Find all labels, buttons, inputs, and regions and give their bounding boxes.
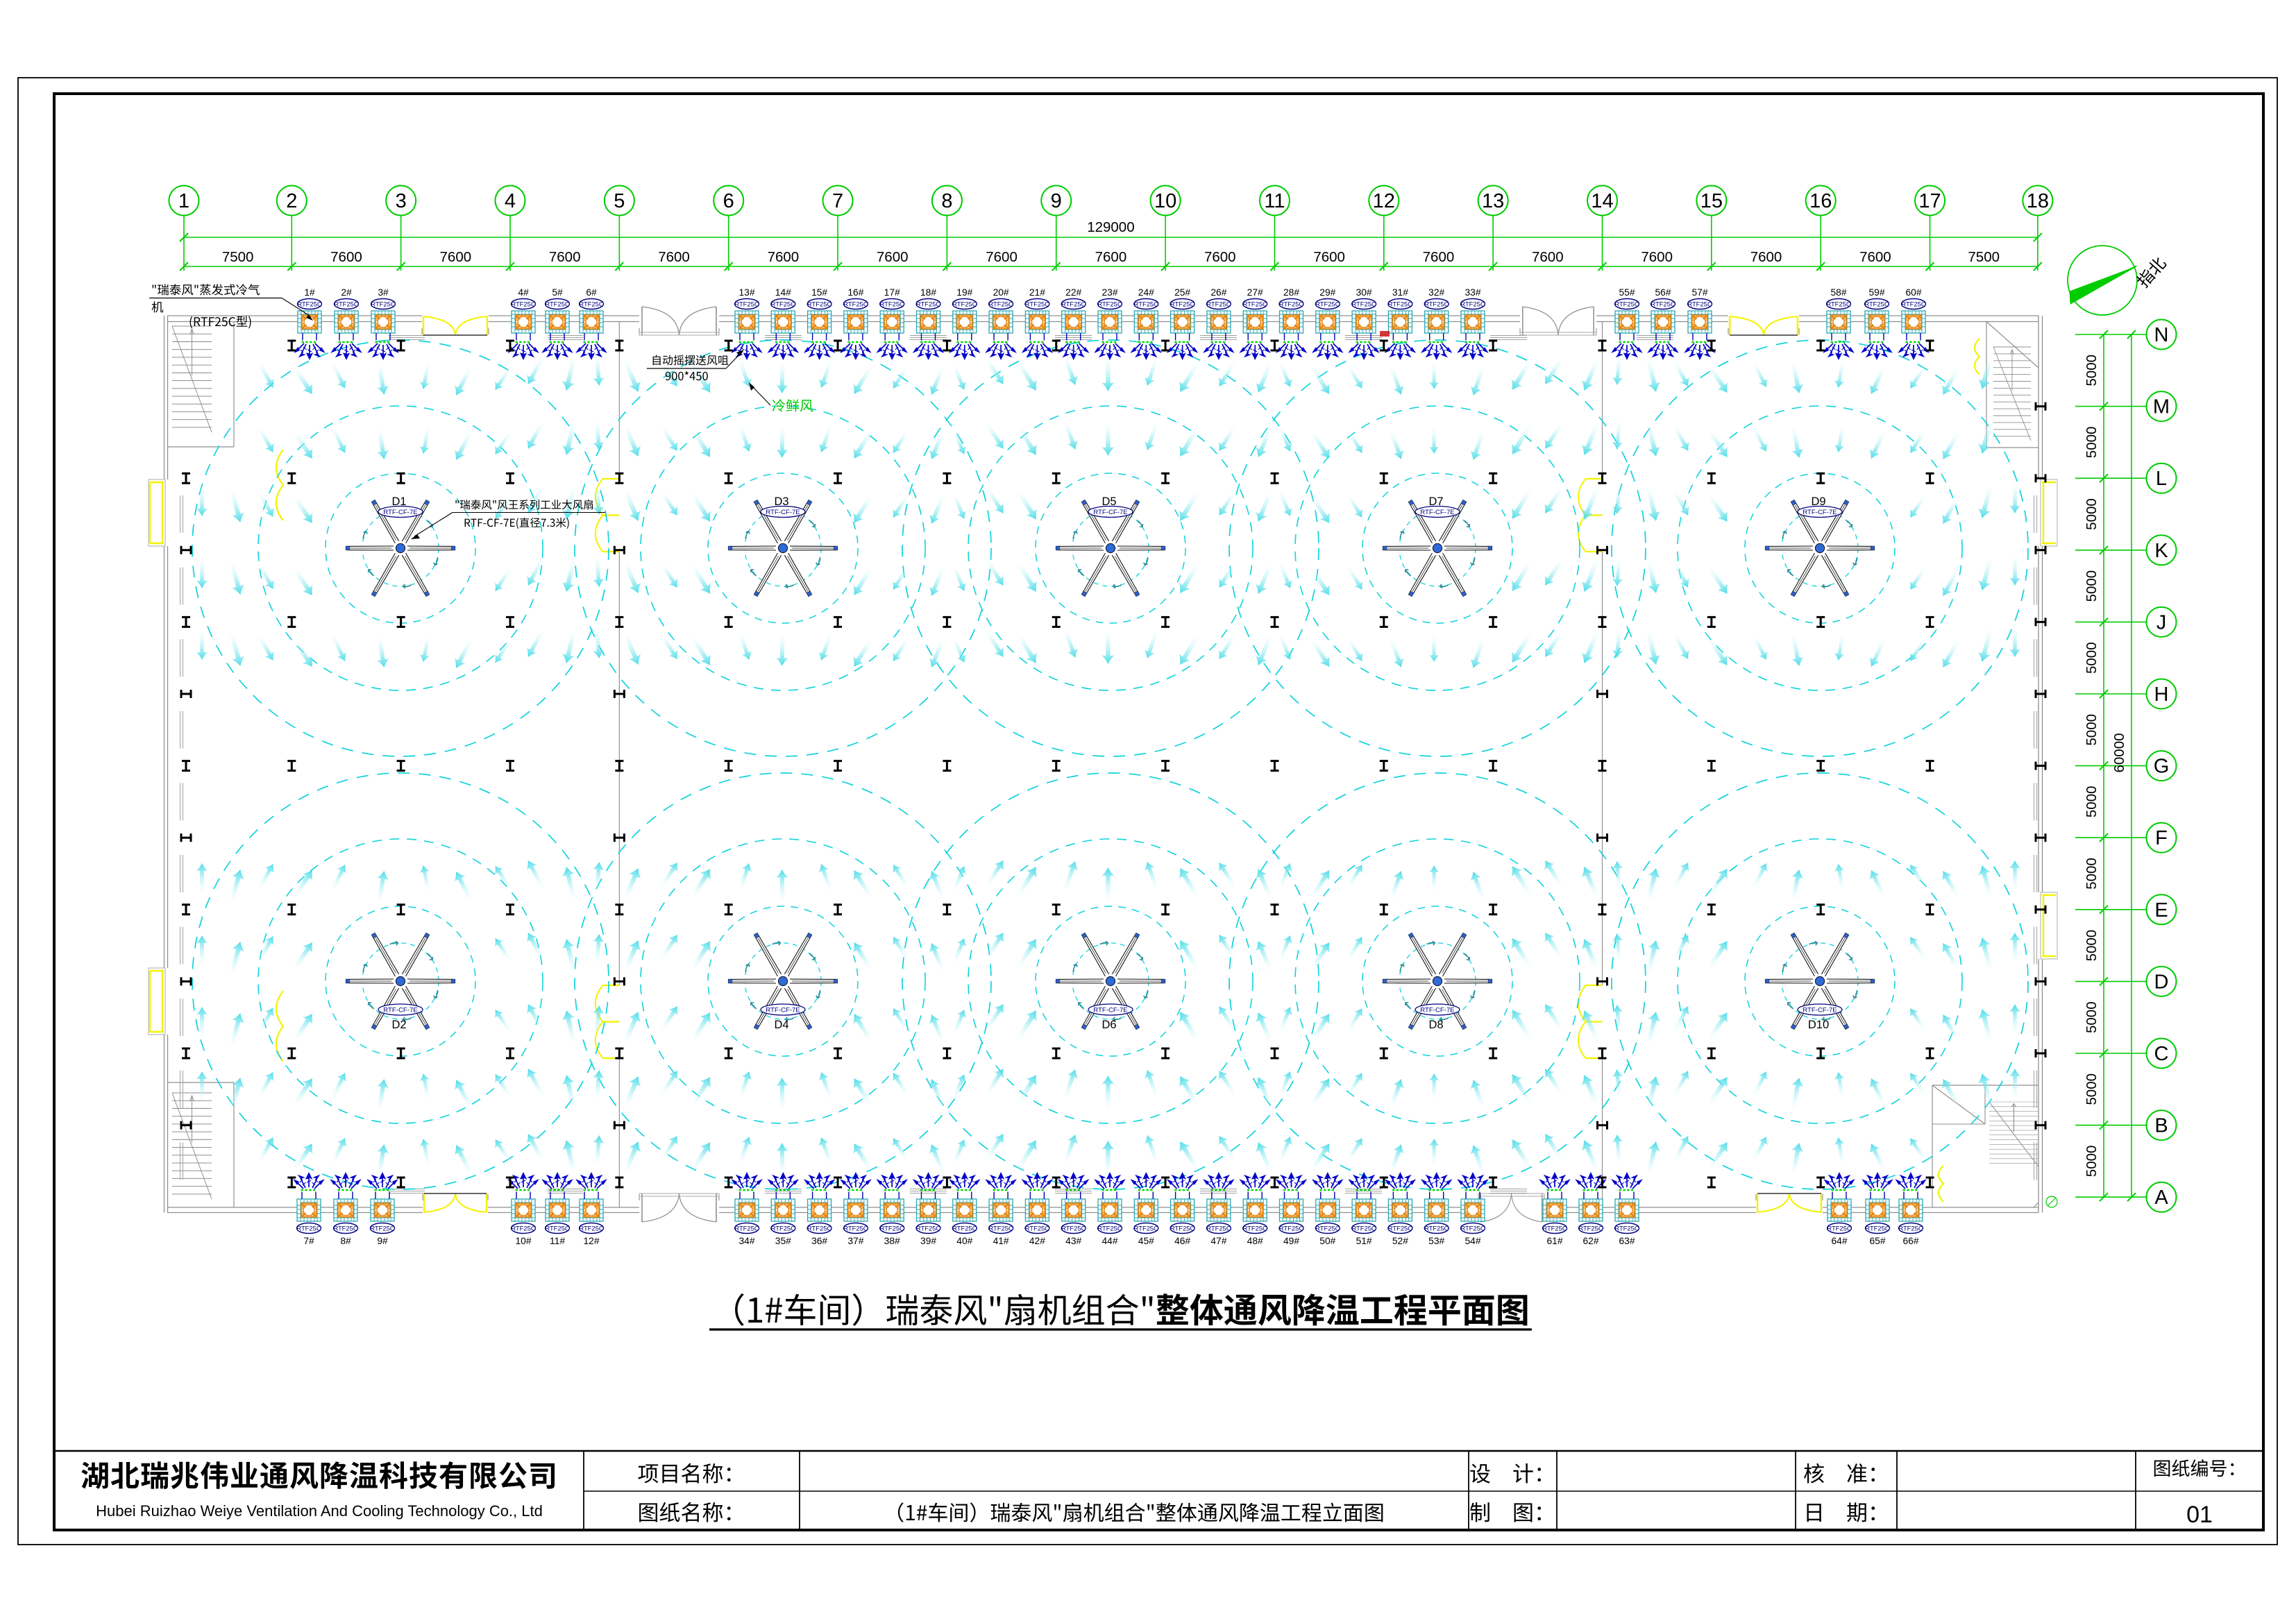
svg-text:5000: 5000 [2084, 427, 2100, 459]
svg-text:2#: 2# [341, 287, 352, 298]
svg-text:RTF25C: RTF25C [807, 1225, 832, 1232]
svg-text:RTF25C: RTF25C [1206, 1225, 1231, 1232]
svg-text:RTF-CF-7E: RTF-CF-7E [766, 1006, 800, 1014]
svg-text:6: 6 [723, 190, 734, 212]
svg-text:RTF25C: RTF25C [296, 1225, 321, 1232]
svg-text:35#: 35# [775, 1236, 791, 1246]
svg-text:RTF25C: RTF25C [297, 300, 321, 308]
svg-text:RTF25C: RTF25C [1578, 1225, 1603, 1232]
svg-text:60000: 60000 [2111, 733, 2127, 772]
svg-text:RTF25C: RTF25C [545, 300, 569, 308]
svg-text:41#: 41# [993, 1236, 1009, 1246]
svg-text:38#: 38# [884, 1236, 900, 1246]
svg-text:46#: 46# [1174, 1236, 1190, 1246]
svg-text:5000: 5000 [2084, 355, 2100, 386]
svg-text:5000: 5000 [2084, 1146, 2100, 1178]
svg-text:45#: 45# [1138, 1236, 1154, 1246]
svg-text:66#: 66# [1902, 1236, 1918, 1246]
svg-text:RTF25C: RTF25C [1279, 300, 1303, 308]
svg-text:6#: 6# [586, 287, 597, 298]
svg-text:D10: D10 [1808, 1019, 1829, 1031]
svg-text:5000: 5000 [2084, 714, 2100, 746]
svg-text:D6: D6 [1101, 1019, 1116, 1031]
svg-text:21#: 21# [1029, 287, 1045, 298]
svg-text:5000: 5000 [2084, 786, 2100, 818]
svg-text:RTF25C: RTF25C [1315, 300, 1340, 308]
svg-text:5000: 5000 [2084, 1001, 2100, 1033]
svg-text:5000: 5000 [2084, 858, 2100, 890]
svg-text:39#: 39# [920, 1236, 936, 1246]
svg-text:RTF25C: RTF25C [1134, 1225, 1158, 1232]
svg-text:13: 13 [1482, 190, 1504, 212]
svg-text:RTF-CF-7E: RTF-CF-7E [1093, 509, 1127, 516]
svg-text:61#: 61# [1546, 1236, 1562, 1246]
svg-text:22#: 22# [1065, 287, 1081, 298]
svg-text:9#: 9# [377, 1236, 388, 1246]
svg-text:10#: 10# [515, 1236, 531, 1246]
svg-text:RTF25C: RTF25C [1614, 300, 1639, 308]
svg-text:7#: 7# [303, 1236, 314, 1246]
svg-text:RTF-CF-7E: RTF-CF-7E [1803, 1006, 1837, 1014]
svg-text:57#: 57# [1691, 287, 1707, 298]
svg-text:RTF25C: RTF25C [807, 300, 832, 308]
svg-text:26#: 26# [1210, 287, 1226, 298]
svg-text:RTF25C: RTF25C [1687, 300, 1712, 308]
svg-text:H: H [2154, 683, 2169, 706]
svg-text:14#: 14# [775, 287, 791, 298]
svg-text:D4: D4 [774, 1019, 788, 1031]
svg-text:5000: 5000 [2084, 1073, 2100, 1105]
svg-text:62#: 62# [1582, 1236, 1598, 1246]
svg-text:7600: 7600 [986, 249, 1018, 265]
svg-text:52#: 52# [1392, 1236, 1408, 1246]
svg-text:RTF25C: RTF25C [1865, 1225, 1889, 1232]
svg-text:32#: 32# [1428, 287, 1444, 298]
svg-text:RTF25C: RTF25C [1351, 1225, 1376, 1232]
svg-text:27#: 27# [1247, 287, 1263, 298]
svg-text:49#: 49# [1283, 1236, 1299, 1246]
svg-text:RTF25C: RTF25C [880, 300, 904, 308]
svg-text:7600: 7600 [1313, 249, 1345, 265]
svg-text:F: F [2155, 827, 2168, 849]
svg-text:37#: 37# [847, 1236, 863, 1246]
svg-text:7600: 7600 [1423, 249, 1455, 265]
svg-text:7600: 7600 [549, 249, 581, 265]
svg-text:4#: 4# [518, 287, 529, 298]
svg-text:7: 7 [832, 190, 843, 212]
svg-text:RTF25C: RTF25C [1243, 300, 1267, 308]
svg-text:58#: 58# [1830, 287, 1846, 298]
svg-text:60#: 60# [1905, 287, 1921, 298]
svg-text:11: 11 [1264, 190, 1285, 212]
svg-text:RTF25C: RTF25C [843, 300, 868, 308]
svg-text:RTF25C: RTF25C [511, 1225, 535, 1232]
svg-text:A: A [2154, 1187, 2168, 1209]
svg-text:51#: 51# [1356, 1236, 1372, 1246]
svg-text:8#: 8# [340, 1236, 351, 1246]
svg-text:13#: 13# [738, 287, 754, 298]
svg-text:RTF25C: RTF25C [371, 300, 395, 308]
svg-text:4: 4 [505, 190, 516, 212]
svg-text:47#: 47# [1210, 1236, 1226, 1246]
svg-text:Hubei Ruizhao Weiye Ventilatio: Hubei Ruizhao Weiye Ventilation And Cool… [96, 1502, 543, 1520]
svg-text:K: K [2154, 540, 2168, 562]
svg-text:RTF25C: RTF25C [1424, 1225, 1449, 1232]
svg-text:RTF25C: RTF25C [1898, 1225, 1923, 1232]
svg-text:3#: 3# [378, 287, 389, 298]
svg-text:RTF25C: RTF25C [1388, 300, 1412, 308]
svg-text:5: 5 [614, 190, 625, 212]
svg-text:RTF25C: RTF25C [1170, 1225, 1195, 1232]
svg-text:RTF25C: RTF25C [771, 300, 795, 308]
svg-text:RTF25C: RTF25C [1826, 300, 1850, 308]
svg-text:M: M [2153, 396, 2170, 418]
svg-text:12#: 12# [583, 1236, 599, 1246]
svg-text:RTF25C: RTF25C [1170, 300, 1195, 308]
svg-text:RTF25C: RTF25C [771, 1225, 795, 1232]
svg-text:RTF25C: RTF25C [1097, 300, 1122, 308]
svg-text:RTF25C: RTF25C [1315, 1225, 1340, 1232]
svg-text:RTF25C: RTF25C [880, 1225, 904, 1232]
svg-text:RTF25C: RTF25C [916, 1225, 940, 1232]
svg-text:23#: 23# [1101, 287, 1117, 298]
svg-text:RTF25C: RTF25C [1864, 300, 1889, 308]
svg-text:9: 9 [1051, 190, 1062, 212]
svg-text:7600: 7600 [1641, 249, 1673, 265]
svg-text:7600: 7600 [330, 249, 362, 265]
svg-text:30#: 30# [1356, 287, 1372, 298]
svg-text:1#: 1# [304, 287, 315, 298]
svg-text:18: 18 [2027, 190, 2049, 212]
svg-text:RTF25C: RTF25C [988, 300, 1013, 308]
svg-text:RTF25C: RTF25C [1614, 1225, 1639, 1232]
svg-text:29#: 29# [1319, 287, 1335, 298]
svg-text:N: N [2154, 324, 2169, 346]
svg-text:54#: 54# [1464, 1236, 1480, 1246]
svg-text:1: 1 [178, 190, 189, 212]
svg-text:2: 2 [286, 190, 297, 212]
svg-text:15#: 15# [811, 287, 827, 298]
svg-text:7600: 7600 [440, 249, 472, 265]
svg-text:RTF-CF-7E: RTF-CF-7E [383, 509, 417, 516]
svg-text:RTF25C: RTF25C [1460, 300, 1485, 308]
svg-text:5000: 5000 [2084, 498, 2100, 530]
svg-text:48#: 48# [1247, 1236, 1263, 1246]
svg-text:14: 14 [1591, 190, 1613, 212]
svg-text:RTF25C: RTF25C [1134, 300, 1158, 308]
svg-text:D: D [2154, 971, 2169, 993]
svg-text:44#: 44# [1101, 1236, 1117, 1246]
svg-text:RTF25C: RTF25C [952, 1225, 977, 1232]
svg-text:56#: 56# [1655, 287, 1671, 298]
svg-text:RTF25C: RTF25C [1460, 1225, 1485, 1232]
svg-text:12: 12 [1373, 190, 1395, 212]
svg-text:J: J [2156, 611, 2167, 634]
svg-text:7600: 7600 [768, 249, 800, 265]
svg-text:RTF-CF-7E: RTF-CF-7E [766, 509, 800, 516]
svg-text:RTF25C: RTF25C [843, 1225, 868, 1232]
svg-text:43#: 43# [1065, 1236, 1081, 1246]
svg-text:7600: 7600 [1750, 249, 1782, 265]
svg-text:RTF25C: RTF25C [1061, 1225, 1086, 1232]
svg-text:RTF-CF-7E: RTF-CF-7E [1420, 509, 1454, 516]
svg-text:RTF25C: RTF25C [1651, 300, 1675, 308]
svg-text:RTF25C: RTF25C [734, 1225, 759, 1232]
svg-text:16: 16 [1809, 190, 1832, 212]
svg-text:RTF25C: RTF25C [579, 300, 603, 308]
svg-text:20#: 20# [993, 287, 1009, 298]
svg-text:RTF25C: RTF25C [1388, 1225, 1412, 1232]
svg-text:59#: 59# [1868, 287, 1884, 298]
svg-text:53#: 53# [1428, 1236, 1444, 1246]
svg-text:34#: 34# [738, 1236, 754, 1246]
svg-text:63#: 63# [1619, 1236, 1635, 1246]
svg-text:RTF25C: RTF25C [734, 300, 759, 308]
svg-text:RTF25C: RTF25C [1061, 300, 1086, 308]
svg-text:RTF25C: RTF25C [370, 1225, 394, 1232]
svg-text:RTF25C: RTF25C [1097, 1225, 1122, 1232]
svg-text:RTF25C: RTF25C [952, 300, 977, 308]
svg-text:7600: 7600 [1532, 249, 1564, 265]
svg-text:RTF25C: RTF25C [1025, 1225, 1049, 1232]
svg-text:42#: 42# [1029, 1236, 1045, 1246]
svg-text:01: 01 [2186, 1502, 2213, 1528]
svg-text:129000: 129000 [1087, 219, 1134, 235]
svg-text:L: L [2156, 468, 2167, 490]
svg-text:RTF25C: RTF25C [1424, 300, 1449, 308]
svg-text:5000: 5000 [2084, 570, 2100, 602]
svg-text:D8: D8 [1428, 1019, 1443, 1031]
svg-text:RTF25C: RTF25C [988, 1225, 1013, 1232]
svg-text:RTF25C: RTF25C [579, 1225, 603, 1232]
svg-text:15: 15 [1700, 190, 1723, 212]
svg-text:5000: 5000 [2084, 642, 2100, 674]
svg-text:65#: 65# [1869, 1236, 1885, 1246]
svg-text:40#: 40# [956, 1236, 972, 1246]
svg-text:RTF25C: RTF25C [545, 1225, 569, 1232]
svg-text:RTF25C: RTF25C [916, 300, 940, 308]
svg-text:RTF25C: RTF25C [1025, 300, 1049, 308]
svg-text:64#: 64# [1831, 1236, 1847, 1246]
svg-text:16#: 16# [847, 287, 863, 298]
svg-text:RTF25C: RTF25C [334, 300, 358, 308]
svg-text:G: G [2154, 756, 2170, 778]
svg-text:RTF-CF-7E: RTF-CF-7E [1420, 1006, 1454, 1014]
svg-text:7600: 7600 [877, 249, 909, 265]
svg-text:RTF-CF-7E: RTF-CF-7E [1803, 509, 1837, 516]
svg-text:33#: 33# [1464, 287, 1480, 298]
svg-text:RTF25C: RTF25C [333, 1225, 357, 1232]
svg-text:28#: 28# [1283, 287, 1299, 298]
svg-text:11#: 11# [550, 1236, 565, 1246]
svg-text:E: E [2154, 899, 2168, 921]
svg-text:3: 3 [396, 190, 407, 212]
svg-text:10: 10 [1154, 190, 1176, 212]
svg-text:55#: 55# [1619, 287, 1635, 298]
svg-text:8: 8 [941, 190, 952, 212]
svg-text:18#: 18# [920, 287, 936, 298]
svg-text:7600: 7600 [658, 249, 690, 265]
svg-text:RTF25C: RTF25C [1542, 1225, 1567, 1232]
svg-text:7500: 7500 [1968, 249, 2000, 265]
svg-text:RTF25C: RTF25C [1279, 1225, 1303, 1232]
svg-text:7600: 7600 [1095, 249, 1127, 265]
svg-text:RTF25C: RTF25C [1243, 1225, 1267, 1232]
svg-text:7600: 7600 [1204, 249, 1236, 265]
svg-text:24#: 24# [1138, 287, 1154, 298]
svg-text:RTF25C: RTF25C [1351, 300, 1376, 308]
svg-text:RTF-CF-7E: RTF-CF-7E [383, 1006, 417, 1014]
svg-text:17: 17 [1918, 190, 1941, 212]
svg-text:RTF25C: RTF25C [1206, 300, 1231, 308]
svg-text:RTF-CF-7E: RTF-CF-7E [1093, 1006, 1127, 1014]
svg-text:36#: 36# [811, 1236, 827, 1246]
svg-text:D2: D2 [391, 1019, 406, 1031]
svg-text:17#: 17# [884, 287, 900, 298]
svg-text:50#: 50# [1319, 1236, 1335, 1246]
svg-text:RTF25C: RTF25C [511, 300, 535, 308]
svg-text:19#: 19# [956, 287, 972, 298]
svg-text:C: C [2154, 1043, 2169, 1065]
svg-text:25#: 25# [1174, 287, 1190, 298]
svg-text:7600: 7600 [1859, 249, 1891, 265]
svg-text:RTF25C: RTF25C [1827, 1225, 1851, 1232]
svg-text:RTF25C: RTF25C [1901, 300, 1925, 308]
svg-text:5#: 5# [552, 287, 563, 298]
svg-text:5000: 5000 [2084, 930, 2100, 962]
svg-text:B: B [2154, 1115, 2168, 1137]
svg-text:7500: 7500 [222, 249, 254, 265]
svg-text:31#: 31# [1392, 287, 1408, 298]
